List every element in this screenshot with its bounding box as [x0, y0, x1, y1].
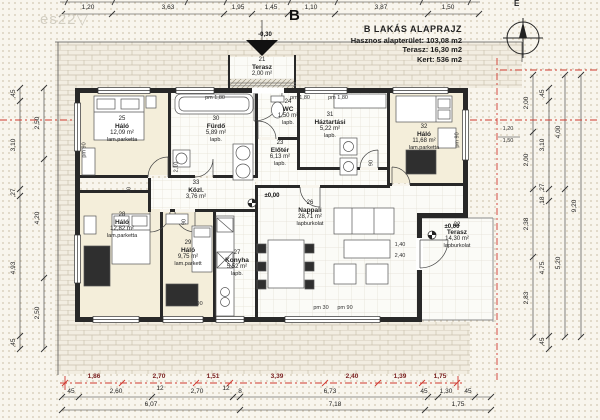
room-area: 2,00 m² [252, 71, 272, 78]
dim-label: 2,00 [524, 154, 531, 167]
dim-label: 45 [420, 389, 427, 396]
dim-label: 1,30 [440, 389, 453, 396]
room-name: Háló [107, 123, 137, 130]
dim-label: 1,20 [82, 5, 95, 12]
room-area: 5,52 m² [225, 264, 249, 271]
level-label-zero: ±0,00 [265, 193, 280, 199]
room-label-26: 26 Nappali 28,71 m² lapburkolat [297, 200, 324, 228]
dim-label: 4,00 [556, 126, 563, 139]
room-name: Terasz [252, 64, 272, 71]
room-area: 14,30 m² [444, 236, 471, 243]
room-floor: lapburkolat [444, 243, 471, 249]
dim-label: ,45 [540, 337, 547, 346]
dim-label: 45 [464, 389, 471, 396]
watermark: es22▽ [40, 12, 89, 27]
room-number: 33 [186, 180, 206, 187]
room-label-28: 28 Háló 12,82 m² lam.parketta [107, 212, 137, 240]
room-area: 28,71 m² [297, 214, 324, 221]
floor-plan-canvas: es22▽ B É B LAKÁS ALAPRAJZ Hasznos alapt… [0, 0, 600, 420]
dim-label: 2,83 [524, 292, 531, 305]
annotation-label: pm 1,80 [328, 96, 348, 102]
dim-label: 3,10 [540, 139, 547, 152]
room-name: Háló [409, 131, 439, 138]
room-number: 29 [174, 240, 201, 247]
dim-label: ,18 [540, 196, 547, 205]
dim-label: 4,75 [540, 262, 547, 275]
dim-label: 45 [67, 389, 74, 396]
dim-label: ,27 [540, 183, 547, 192]
dim-label: 9,20 [572, 200, 579, 213]
dim-label: 1,75 [434, 374, 447, 381]
room-label-21: 21 Terasz 2,00 m² [252, 57, 272, 78]
dim-label: 2,40 [346, 374, 359, 381]
dim-label: 1,50 [442, 5, 455, 12]
room-name: Háló [107, 219, 137, 226]
room-number: 30 [206, 116, 226, 123]
annotation-label: pm 90 [187, 302, 202, 308]
room-area: 5,22 m² [314, 126, 345, 133]
annotation-label: pm 1,80 [290, 96, 310, 102]
dim-label: 2,00 [524, 97, 531, 110]
plan-title: B LAKÁS ALAPRAJZ [296, 24, 462, 36]
room-area: 9,75 m² [174, 254, 201, 261]
dim-label: 1,75 [452, 402, 465, 409]
room-floor: lapburkolat [297, 221, 324, 227]
room-number: 25 [107, 116, 137, 123]
annotation-label: 2,10 [174, 162, 180, 173]
room-number: 31 [314, 112, 345, 119]
annotation-label: pm 1,80 [205, 96, 225, 102]
room-label-25: 25 Háló 12,09 m² lam.parketta [107, 116, 137, 144]
room-floor: lam.parkett [174, 261, 201, 267]
room-area: 1,50 m² [278, 113, 298, 120]
dim-label: ,45 [11, 338, 18, 347]
annotation-label: 90 [369, 160, 375, 166]
annotation-label: pm 30 [313, 306, 328, 312]
room-floor: lam.parketta [107, 233, 137, 239]
dim-label: 2,50 [35, 117, 42, 130]
room-name: Fürdő [206, 123, 226, 130]
title-block: B LAKÁS ALAPRAJZ Hasznos alapterület: 10… [296, 24, 462, 65]
room-area: 11,68 m² [409, 138, 439, 145]
room-floor: lapb. [206, 137, 226, 143]
room-area: 12,82 m² [107, 226, 137, 233]
annotation-label: 1,50 [503, 139, 514, 145]
level-label-zero-terrace: ±0,00 [445, 224, 460, 230]
dim-label: 12 [156, 386, 163, 393]
room-number: 23 [270, 140, 290, 147]
room-area: 3,76 m² [186, 194, 206, 201]
room-area: 6,13 m² [270, 154, 290, 161]
room-name: Háztartási [314, 119, 345, 126]
dim-label: ,45 [540, 89, 547, 98]
room-floor: lapb. [225, 271, 249, 277]
room-label-23: 23 Előtér 6,13 m² lapb. [270, 140, 290, 168]
room-name: Konyha [225, 257, 249, 264]
annotation-label: pm 90 [455, 132, 461, 147]
dim-label: ,45 [11, 89, 18, 98]
dim-label: 5,20 [556, 257, 563, 270]
plan-terrace-line: Terasz: 16,30 m2 [296, 45, 462, 55]
room-floor: lapb. [270, 161, 290, 167]
room-name: Nappali [297, 207, 324, 214]
level-marker-icon [428, 231, 436, 239]
room-area: 12,09 m² [107, 130, 137, 137]
annotation-label: 90 [127, 187, 133, 193]
annotation-label: 2,40 [395, 254, 406, 260]
dim-label: 3,87 [375, 5, 388, 12]
room-name: Közl. [186, 187, 206, 194]
annotation-label: pm 90 [337, 306, 352, 312]
room-label-31: 31 Háztartási 5,22 m² lapb. [314, 112, 345, 140]
dim-label: 4,20 [35, 212, 42, 225]
dim-label: 1,45 [265, 5, 278, 12]
room-name: Háló [174, 247, 201, 254]
dim-label: 2,70 [191, 389, 204, 396]
plan-garden-line: Kert: 536 m2 [296, 55, 462, 65]
room-floor: lapb. [314, 133, 345, 139]
dim-label: 1,95 [232, 5, 245, 12]
room-label-32: 32 Háló 11,68 m² lam.parketta [409, 124, 439, 152]
dim-label: 2,38 [524, 218, 531, 231]
dim-label: 2,60 [110, 389, 123, 396]
room-number: 32 [409, 124, 439, 131]
room-floor: lam.parketta [107, 137, 137, 143]
plan-area-line: Hasznos alapterület: 103,08 m2 [296, 36, 462, 46]
level-marker-icon [248, 199, 256, 207]
dim-label: 3,10 [11, 139, 18, 152]
room-floor: lapb. [278, 120, 298, 126]
level-label-minus: -0,30 [258, 32, 272, 38]
section-marker-b: B [289, 8, 300, 23]
dim-label: 12 [222, 386, 229, 393]
dim-label: 4,93 [11, 262, 18, 275]
room-name: Előtér [270, 147, 290, 154]
room-label-33: 33 Közl. 3,76 m² [186, 180, 206, 201]
room-label-24: 24 WC 1,50 m² lapb. [278, 99, 298, 127]
dim-label: 1,39 [394, 374, 407, 381]
dim-label: 6,73 [324, 389, 337, 396]
room-label-30: 30 Fürdő 5,89 m² lapb. [206, 116, 226, 144]
dim-label: 8 [238, 389, 242, 396]
dim-label: ,27 [11, 188, 18, 197]
room-label-27: 27 Konyha 5,52 m² lapb. [225, 250, 249, 278]
dim-label: 2,50 [35, 307, 42, 320]
north-label: É [514, 0, 519, 8]
annotation-label: 1,20 [503, 127, 514, 133]
annotation-label: 90 [182, 219, 188, 225]
annotation-label: pm 90 [82, 142, 88, 157]
dim-label: 1,10 [305, 5, 318, 12]
annotation-label: 1,40 [395, 243, 406, 249]
room-number: 21 [252, 57, 272, 64]
room-area: 5,89 m² [206, 130, 226, 137]
room-label-29: 29 Háló 9,75 m² lam.parkett [174, 240, 201, 268]
dim-label: 3,39 [271, 374, 284, 381]
room-number: 27 [225, 250, 249, 257]
room-name: Terasz [444, 229, 471, 236]
dim-label: 6,07 [145, 402, 158, 409]
room-name: WC [278, 106, 298, 113]
dim-label: 7,18 [329, 402, 342, 409]
dim-label: 2,70 [153, 374, 166, 381]
dim-label: 1,86 [88, 374, 101, 381]
room-number: 26 [297, 200, 324, 207]
dim-label: 1,51 [207, 374, 220, 381]
room-number: 28 [107, 212, 137, 219]
room-floor: lam.parketta [409, 145, 439, 151]
dim-label: 3,63 [162, 5, 175, 12]
